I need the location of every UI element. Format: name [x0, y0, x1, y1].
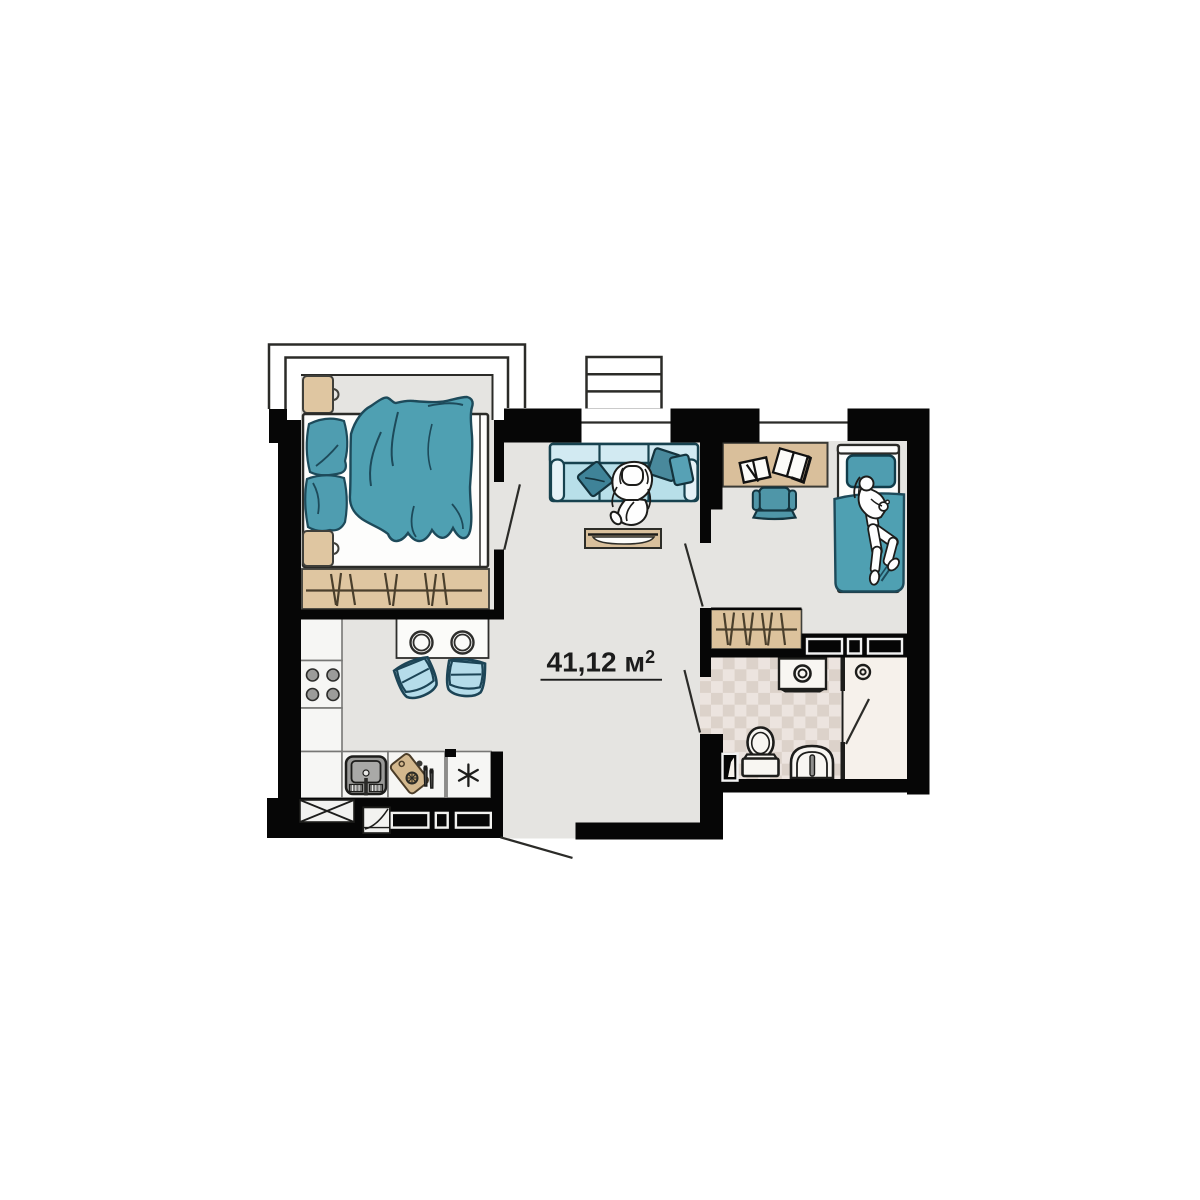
- svg-text:41,12 м2: 41,12 м2: [547, 646, 656, 677]
